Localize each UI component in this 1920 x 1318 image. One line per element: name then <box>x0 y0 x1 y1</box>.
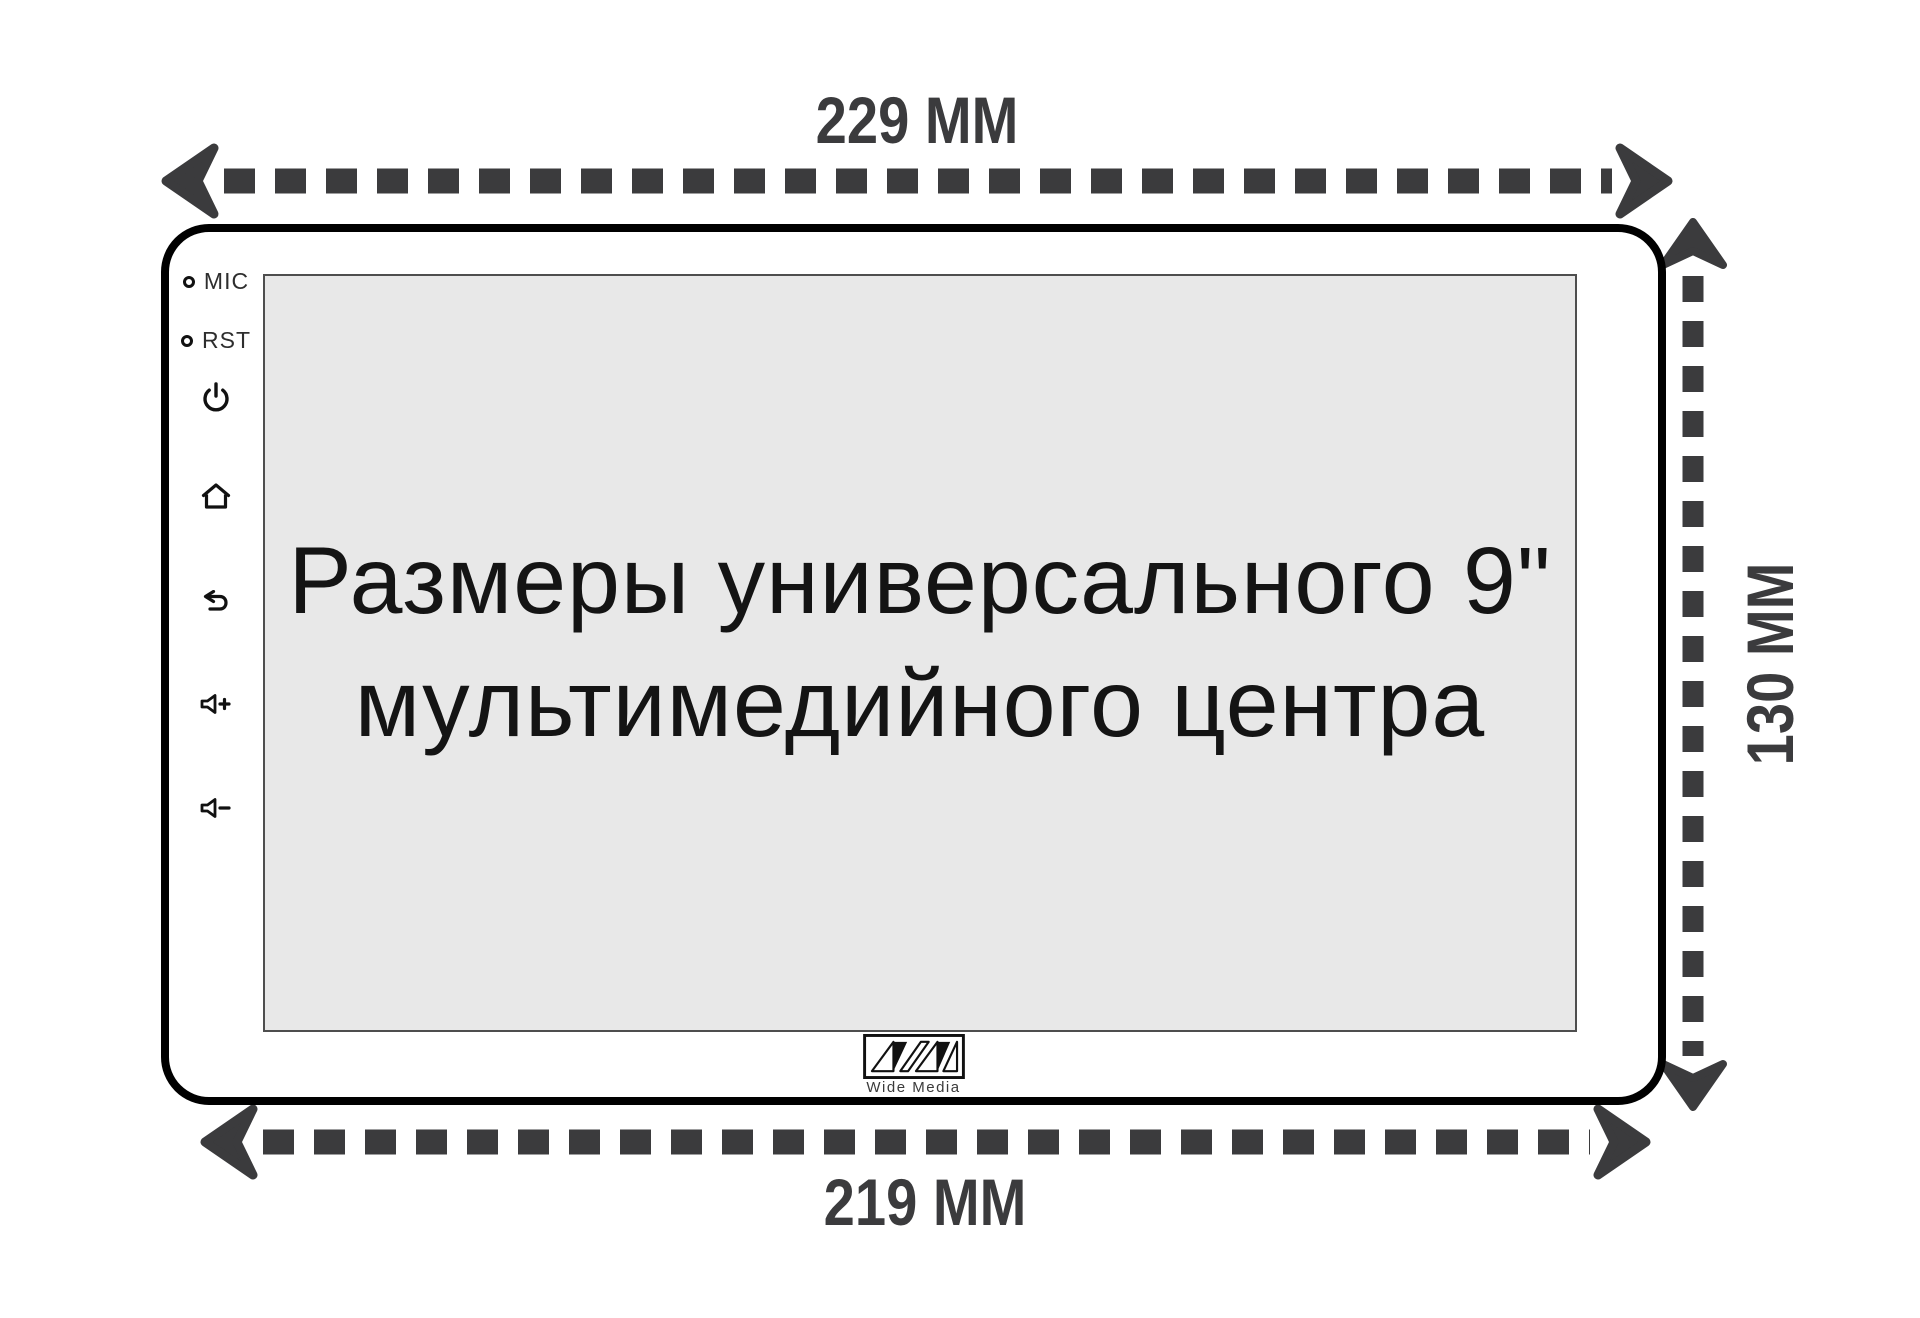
back-arrow-icon <box>198 590 234 614</box>
home-button <box>169 481 263 511</box>
power-icon <box>201 381 231 413</box>
wide-media-logo-icon <box>863 1034 965 1079</box>
reset-hole-icon <box>181 335 193 347</box>
head-unit-outline: Размеры универсального 9" мультимедийног… <box>161 224 1666 1105</box>
mic-hole-icon <box>183 276 195 288</box>
diagram-title-line2: мультимедийного центра <box>355 643 1485 767</box>
volume-down-icon <box>198 795 234 821</box>
volume-up-button <box>169 691 263 717</box>
diagram-title-line1: Размеры универсального 9" <box>288 520 1551 644</box>
brand-name: Wide Media <box>863 1080 965 1096</box>
back-button <box>169 590 263 614</box>
bottom-width-arrow <box>205 1109 1646 1175</box>
dimension-diagram: 229 MM 219 MM 130 MM Размеры универсальн… <box>0 0 1920 1318</box>
reset-label: RST <box>202 327 251 354</box>
home-icon <box>200 481 232 511</box>
mic-port: MIC <box>169 268 263 295</box>
volume-up-icon <box>198 691 234 717</box>
brand-logo: Wide Media <box>863 1034 965 1096</box>
reset-port: RST <box>169 327 263 354</box>
top-width-arrow <box>166 148 1668 214</box>
power-button <box>169 381 263 413</box>
mic-label: MIC <box>204 268 249 295</box>
display-screen: Размеры универсального 9" мультимедийног… <box>263 274 1577 1032</box>
height-arrow <box>1663 222 1723 1107</box>
volume-down-button <box>169 795 263 821</box>
